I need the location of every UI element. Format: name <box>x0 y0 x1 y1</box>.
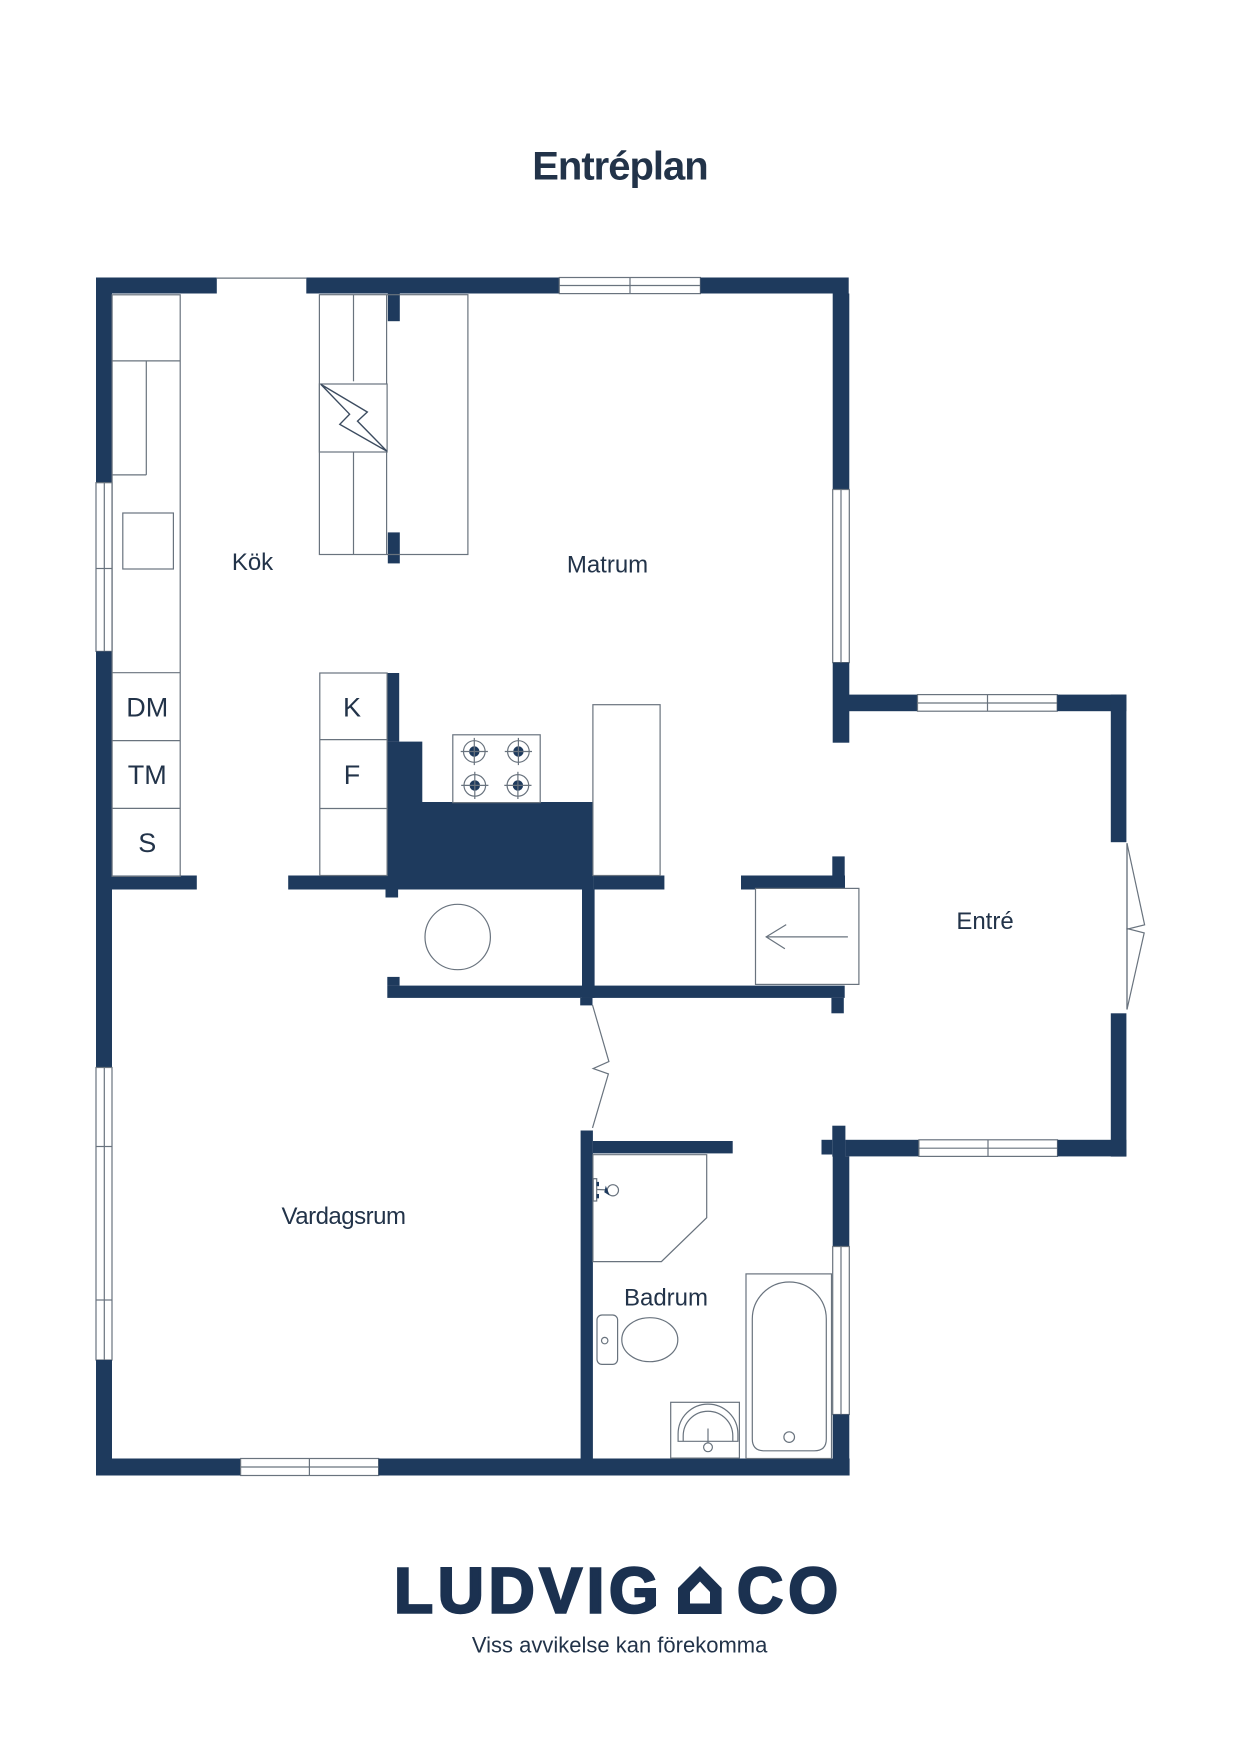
svg-text:Vardagsrum: Vardagsrum <box>282 1203 406 1230</box>
svg-text:Kök: Kök <box>232 549 274 576</box>
svg-text:F: F <box>344 760 361 790</box>
svg-text:Entré: Entré <box>956 908 1013 935</box>
svg-text:CO: CO <box>737 1555 843 1627</box>
svg-text:TM: TM <box>128 760 167 790</box>
svg-text:DM: DM <box>126 692 168 722</box>
svg-text:Badrum: Badrum <box>624 1285 708 1312</box>
svg-text:S: S <box>138 828 156 858</box>
svg-text:Viss avvikelse kan förekomma: Viss avvikelse kan förekomma <box>472 1633 768 1658</box>
svg-text:LUDVIG: LUDVIG <box>394 1555 663 1627</box>
svg-text:Entréplan: Entréplan <box>532 145 707 189</box>
svg-text:K: K <box>343 692 361 722</box>
svg-text:Matrum: Matrum <box>567 552 648 579</box>
